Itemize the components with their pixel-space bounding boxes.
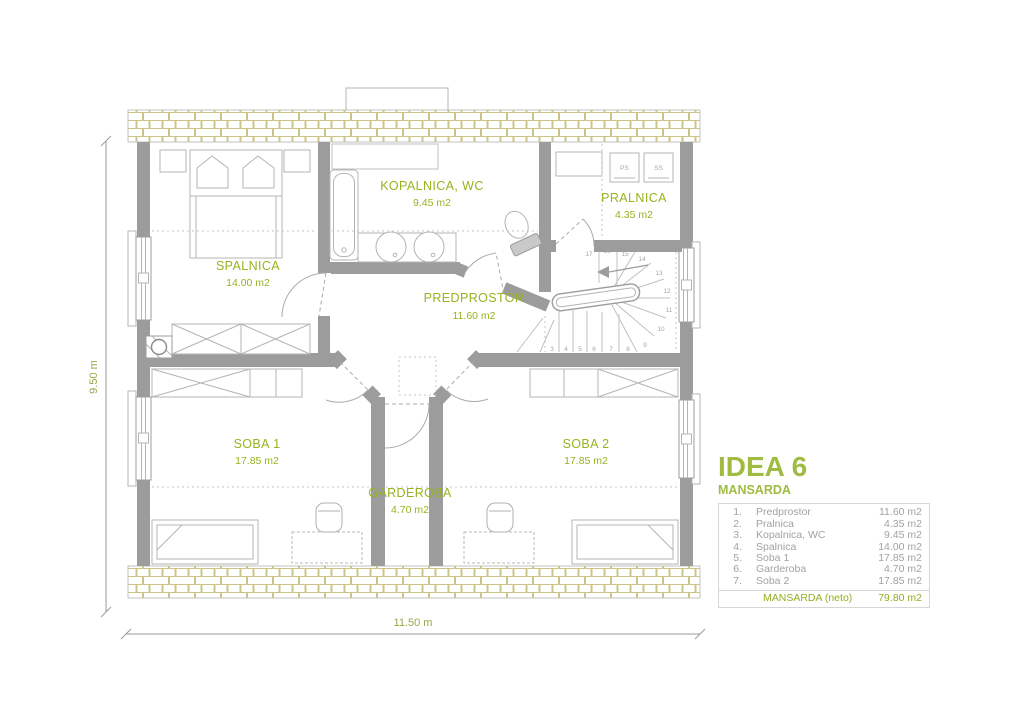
- room-label-pralnica: PRALNICA: [601, 191, 667, 205]
- room-area-soba2: 17.85 m2: [564, 455, 608, 467]
- stair-step-number: 5: [578, 346, 582, 353]
- single-bed: [152, 520, 258, 564]
- stair-step-number: 14: [638, 256, 646, 263]
- brick-wall-bottom: [128, 566, 700, 598]
- roof-window-outline: [399, 357, 436, 395]
- stair-step-number: 9: [643, 342, 647, 349]
- legend-total-row: MANSARDA (neto) 79.80 m2: [719, 591, 930, 607]
- legend-row: 7. Soba 2 17.85 m2: [719, 576, 930, 591]
- legend-table: 1. Predprostor 11.60 m2 2. Pralnica 4.35…: [718, 503, 930, 607]
- door-arc: [583, 219, 594, 246]
- stair-step-number: 7: [609, 346, 613, 353]
- room-label-predprostor: PREDPROSTOR: [424, 291, 525, 305]
- chimney: [146, 336, 172, 358]
- wardrobe: [530, 369, 678, 397]
- brick-wall-top: [128, 110, 700, 142]
- stair-step-number: 12: [663, 288, 671, 295]
- plan-title: IDEA 6: [718, 452, 930, 481]
- nightstand: [284, 150, 310, 172]
- door-opening: [317, 273, 331, 316]
- stair-step-number: 16: [603, 248, 611, 255]
- dimension-left: 9.50 m: [88, 136, 111, 617]
- dryer: SS: [644, 153, 673, 182]
- stair-step-number: 17: [585, 251, 593, 258]
- washing-machine: PS: [610, 153, 639, 182]
- washer-label: PS: [620, 165, 629, 172]
- desk-and-chair: [464, 503, 534, 563]
- sink-counter: [358, 232, 456, 262]
- wardrobe: [152, 369, 302, 397]
- room-area-spalnica: 14.00 m2: [226, 277, 270, 289]
- room-label-soba1: SOBA 1: [234, 437, 281, 451]
- room-area-soba1: 17.85 m2: [235, 455, 279, 467]
- chair: [316, 503, 342, 532]
- stair-step-number: 3: [550, 346, 554, 353]
- stair-step-number: 6: [592, 346, 596, 353]
- room-label-soba2: SOBA 2: [563, 437, 610, 451]
- door-openings: [342, 272, 504, 390]
- room-label-garderoba: GARDEROBA: [368, 486, 452, 500]
- dimension-width-label: 11.50 m: [394, 617, 433, 629]
- stair-step-number: 13: [655, 270, 663, 277]
- bathroom-cabinet: [332, 144, 438, 169]
- stair-step-number: 11: [666, 307, 673, 314]
- single-bed: [572, 520, 678, 564]
- door-arc: [385, 404, 429, 448]
- dryer-label: SS: [654, 165, 663, 172]
- stair-step-number: 8: [626, 346, 630, 353]
- stair-step-number: 15: [621, 251, 629, 258]
- stair-railing: [551, 283, 641, 312]
- window: [128, 231, 151, 326]
- bathtub: [330, 170, 358, 260]
- room-area-garderoba: 4.70 m2: [391, 504, 429, 516]
- room-area-predprostor: 11.60 m2: [453, 310, 496, 322]
- floor-plan-drawing: PS SS 3 4 5 6 7 8 9 10 11 12 13 14 15 16…: [0, 0, 1024, 724]
- nightstand: [160, 150, 186, 172]
- floor-plan-page: PS SS 3 4 5 6 7 8 9 10 11 12 13 14 15 16…: [0, 0, 1024, 724]
- double-bed: [160, 150, 310, 258]
- room-area-kopalnica: 9.45 m2: [413, 197, 451, 209]
- legend: IDEA 6 MANSARDA 1. Predprostor 11.60 m2 …: [718, 452, 930, 608]
- sink: [376, 232, 406, 262]
- room-label-kopalnica: KOPALNICA, WC: [380, 179, 484, 193]
- window: [128, 391, 151, 486]
- window: [679, 242, 700, 328]
- door-leaf: [556, 219, 583, 244]
- chair: [487, 503, 513, 532]
- legend-row: 1. Predprostor 11.60 m2: [719, 504, 930, 519]
- room-label-spalnica: SPALNICA: [216, 259, 280, 273]
- legend-row: 3. Kopalnica, WC 9.45 m2: [719, 530, 930, 541]
- window: [679, 394, 700, 484]
- right-wall: [680, 142, 693, 566]
- stair-step-number: 10: [657, 326, 665, 333]
- dimension-bottom: 11.50 m: [121, 617, 705, 639]
- dimension-height-label: 9.50 m: [88, 360, 100, 394]
- laundry-counter: [556, 152, 602, 176]
- room-area-pralnica: 4.35 m2: [615, 209, 653, 221]
- desk-and-chair: [292, 503, 362, 563]
- sink: [414, 232, 444, 262]
- wardrobe: [172, 324, 310, 354]
- floor-name: MANSARDA: [718, 483, 930, 497]
- stair-step-number: 4: [564, 346, 568, 353]
